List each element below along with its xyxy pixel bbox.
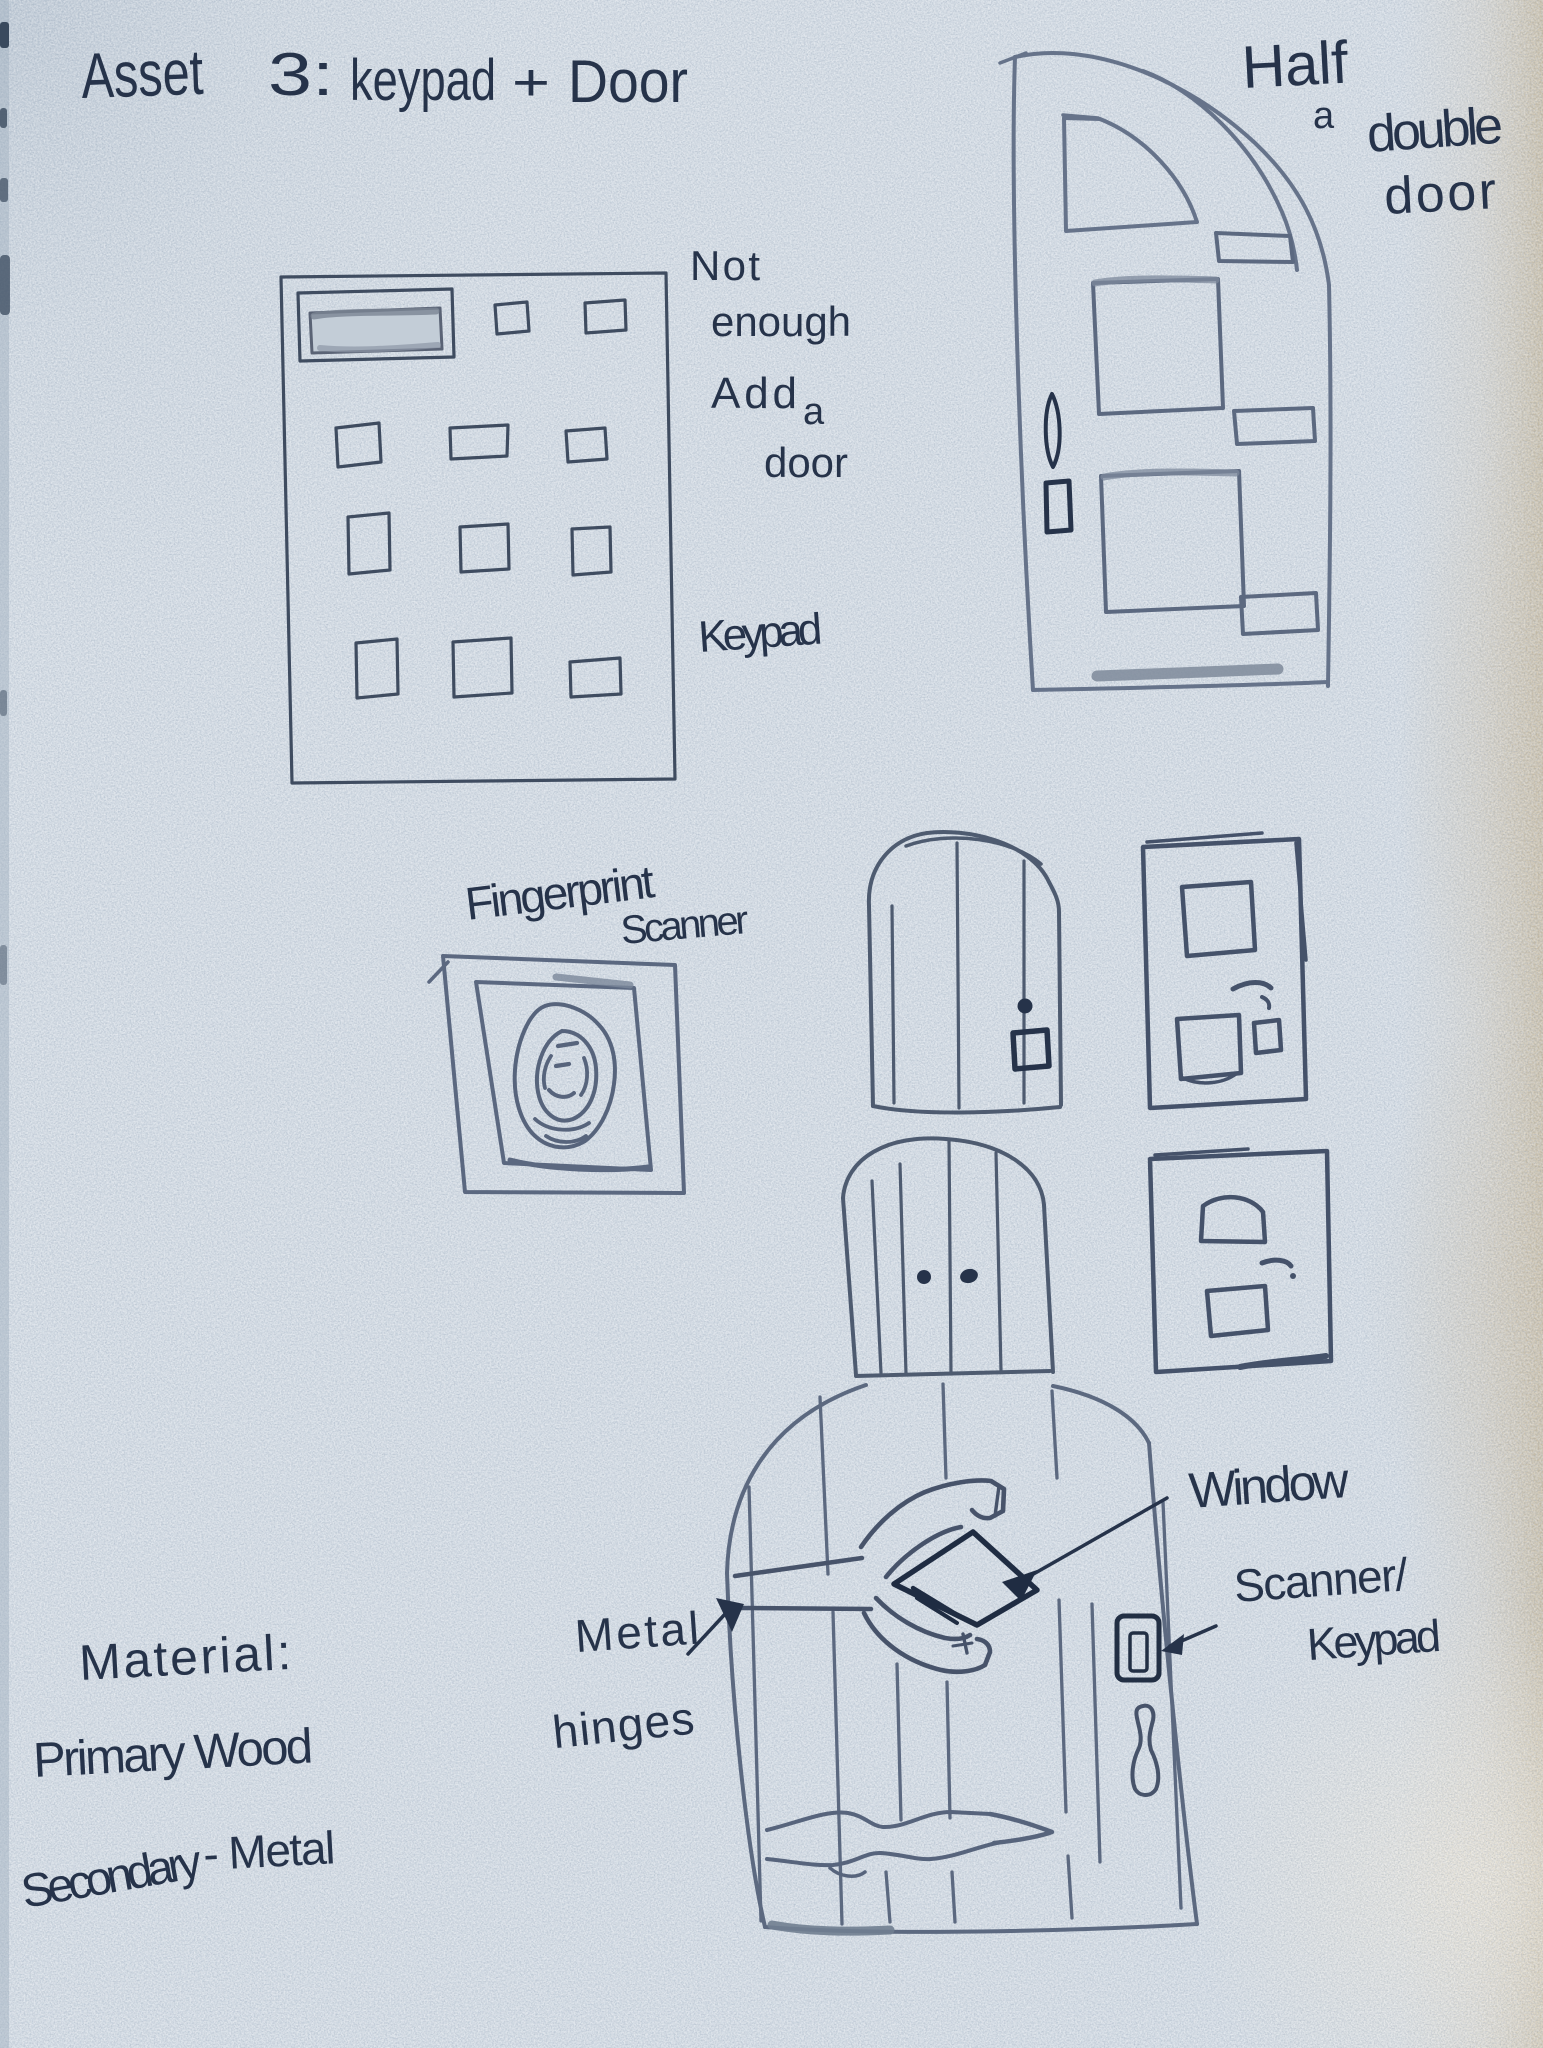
svg-text:Metal: Metal xyxy=(573,1602,700,1663)
svg-text:Half: Half xyxy=(1240,29,1350,101)
svg-text:+: + xyxy=(512,54,550,112)
svg-text:enough: enough xyxy=(711,298,851,345)
svg-text:a: a xyxy=(803,391,825,433)
svg-text:- Metal: - Metal xyxy=(202,1821,337,1880)
svg-text:double: double xyxy=(1365,97,1505,164)
svg-text:Door: Door xyxy=(568,48,688,115)
svg-text:Not: Not xyxy=(690,242,760,289)
svg-text:3:: 3: xyxy=(268,41,334,108)
svg-text:Add: Add xyxy=(711,369,797,418)
svg-text:a: a xyxy=(1313,95,1335,137)
svg-text:keypad: keypad xyxy=(350,48,496,113)
svg-text:Window: Window xyxy=(1187,1452,1351,1519)
svg-text:Keypad: Keypad xyxy=(1305,1610,1442,1670)
svg-text:door: door xyxy=(1383,162,1498,226)
svg-text:Asset: Asset xyxy=(80,36,205,112)
svg-text:door: door xyxy=(764,439,848,486)
svg-text:Keypad: Keypad xyxy=(697,604,824,662)
